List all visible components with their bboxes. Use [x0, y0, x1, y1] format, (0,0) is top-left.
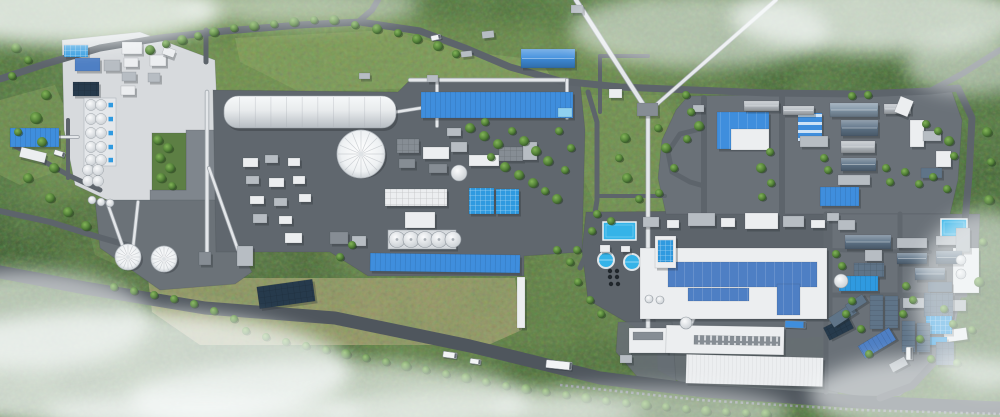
tree [567, 144, 575, 152]
building-roof [637, 103, 658, 116]
tree [588, 227, 596, 235]
building [64, 45, 90, 60]
tree [190, 300, 198, 308]
tree [168, 182, 176, 190]
tree [37, 137, 47, 147]
silo-tower [96, 114, 107, 125]
building [451, 142, 469, 155]
building-roof [936, 151, 951, 167]
building-roof [269, 178, 284, 187]
building [517, 277, 527, 331]
building-roof [427, 75, 438, 82]
silo-tower [93, 176, 104, 187]
tree [929, 173, 937, 181]
building-roof [633, 332, 663, 340]
tree [882, 164, 890, 172]
building [841, 141, 877, 156]
building [496, 189, 521, 217]
tree [766, 148, 774, 156]
tree [573, 246, 581, 254]
tree [155, 153, 165, 163]
building [845, 235, 893, 252]
silo-tower [96, 100, 107, 111]
tree [865, 350, 873, 358]
building-roof [285, 233, 302, 243]
tree [670, 164, 678, 172]
building-roof [405, 212, 435, 228]
building-roof-texture [499, 147, 523, 161]
building-roof [330, 232, 348, 244]
digester-dot [609, 282, 613, 286]
tree [145, 45, 155, 55]
building-roof [429, 164, 447, 173]
building [279, 216, 294, 227]
building-roof [827, 213, 839, 221]
silo-tower [86, 128, 97, 139]
tree [500, 162, 510, 172]
silo-tower [96, 142, 107, 153]
silo-tower [83, 165, 94, 176]
tree [922, 120, 930, 128]
tree [899, 310, 907, 318]
building-roof [571, 5, 583, 13]
building [830, 103, 880, 120]
building-roof [279, 216, 292, 224]
tree [433, 41, 443, 51]
building [299, 194, 313, 205]
building-roof [265, 155, 278, 163]
building [73, 82, 101, 99]
building [429, 164, 449, 176]
building-roof [288, 158, 300, 166]
tree [654, 124, 662, 132]
silo-blue-hatch [109, 103, 114, 108]
building [668, 262, 817, 287]
building-roof [359, 73, 370, 79]
tree [767, 179, 775, 187]
digester-dot [608, 275, 612, 279]
building-roof [800, 136, 828, 147]
building [104, 60, 122, 74]
building [633, 332, 663, 340]
tree [24, 56, 32, 64]
tree [944, 136, 954, 146]
tree [756, 163, 766, 173]
silo-blue-hatch [109, 131, 114, 136]
tree [348, 241, 356, 249]
building-roof-texture [668, 262, 817, 287]
tree [687, 108, 695, 116]
tree [23, 173, 33, 183]
storage-tank [106, 199, 114, 207]
building-roof-texture [658, 240, 673, 262]
building-roof [399, 159, 415, 168]
building [469, 188, 496, 217]
tree [901, 168, 909, 176]
building-roof [745, 213, 778, 229]
building [694, 335, 780, 345]
building-roof-texture [885, 296, 898, 328]
tree [848, 297, 856, 305]
building-roof-texture [686, 354, 824, 387]
building-roof-texture [397, 139, 419, 153]
tree [465, 123, 475, 133]
tree [857, 325, 865, 333]
tree [493, 139, 503, 149]
building-roof-texture [469, 188, 494, 214]
building-roof [423, 147, 449, 159]
building-roof [122, 72, 136, 81]
building [643, 217, 661, 230]
dome-cap [359, 152, 364, 157]
tree [682, 91, 690, 99]
industrial-site-aerial-view [0, 0, 1000, 417]
digester-dot [615, 269, 619, 273]
building-roof [293, 176, 305, 184]
tree [30, 112, 42, 124]
building-roof-texture [421, 92, 573, 118]
building [745, 213, 780, 232]
storage-tank [656, 296, 664, 304]
building [199, 252, 213, 268]
building [423, 147, 451, 162]
building-roof [121, 86, 135, 95]
tree [11, 43, 21, 53]
silo-tower [93, 165, 104, 176]
tree [514, 170, 524, 180]
building [121, 86, 137, 98]
tree [479, 131, 489, 141]
tree [824, 166, 832, 174]
tree [950, 152, 958, 160]
storage-tank [834, 274, 848, 288]
building-roof [274, 198, 287, 206]
tree [49, 163, 59, 173]
building [447, 128, 463, 139]
building-roof [783, 216, 804, 227]
tree [574, 278, 582, 286]
building-roof [124, 58, 138, 67]
vehicle [785, 321, 807, 330]
building [75, 58, 102, 74]
building-roof [620, 355, 632, 363]
round-silo-cap [410, 238, 413, 241]
tree [586, 296, 594, 304]
tree [508, 127, 516, 135]
tree [984, 195, 994, 205]
building-roof [246, 176, 259, 184]
tree [481, 118, 489, 126]
storage-tank [645, 295, 653, 303]
building [253, 214, 269, 226]
building [265, 155, 280, 166]
tree [412, 34, 422, 44]
building-roof [148, 73, 160, 82]
tree [452, 50, 460, 58]
building [405, 212, 437, 231]
tree [8, 72, 16, 80]
tree [543, 156, 553, 166]
building [246, 176, 261, 187]
building [274, 198, 289, 209]
building [936, 151, 953, 170]
silo-blue-hatch [109, 117, 114, 122]
building [731, 129, 769, 150]
storage-tank [451, 165, 467, 181]
tree [194, 32, 202, 40]
tree [210, 307, 218, 315]
building [397, 139, 421, 156]
building [777, 284, 800, 315]
building-roof-texture [64, 45, 88, 57]
building [399, 159, 417, 171]
tree [162, 40, 170, 48]
building [820, 187, 861, 209]
building [330, 232, 350, 247]
tree [209, 27, 219, 37]
building-roof [104, 60, 120, 71]
silo-tower [86, 155, 97, 166]
tree [615, 154, 623, 162]
tree [597, 310, 605, 318]
tree [553, 246, 561, 254]
tree [838, 262, 846, 270]
silo-blue-hatch [109, 145, 114, 150]
tree [635, 195, 643, 203]
tree [156, 173, 166, 183]
building [370, 253, 522, 276]
tree [150, 291, 158, 299]
building [658, 240, 673, 262]
tree [864, 91, 872, 99]
digester-dot [615, 275, 619, 279]
building [800, 136, 830, 150]
building [469, 155, 501, 169]
building-roof [600, 245, 610, 252]
building-roof-texture [820, 187, 859, 206]
silo-tower [86, 114, 97, 125]
tree [163, 143, 173, 153]
building [620, 355, 634, 366]
truck-trailer [785, 321, 806, 329]
tree [41, 90, 51, 100]
tree [902, 282, 910, 290]
building [838, 220, 857, 233]
building-roof [451, 142, 467, 152]
tree [531, 146, 541, 156]
building [841, 120, 880, 139]
digester-dot [616, 282, 620, 286]
tree [561, 166, 569, 174]
building [250, 196, 266, 207]
silo-tower [83, 176, 94, 187]
building [558, 108, 572, 117]
building [285, 233, 304, 246]
round-silo-cap [396, 238, 399, 241]
silo-tower [86, 100, 97, 111]
building [499, 147, 525, 164]
digester-dot [608, 269, 612, 273]
building [122, 42, 144, 57]
dome-cap [126, 255, 130, 259]
building-roof [75, 58, 100, 71]
round-silo-cap [424, 238, 427, 241]
hangar-arched-roof [224, 96, 396, 128]
tree [372, 24, 382, 34]
building-roof [621, 246, 630, 252]
building-roof [811, 220, 825, 228]
silo-blue-hatch [109, 158, 114, 163]
building-roof [910, 120, 924, 147]
tree [394, 29, 402, 37]
building [637, 103, 660, 119]
building-roof [253, 214, 267, 223]
building [421, 92, 575, 121]
tree [81, 221, 91, 231]
building [838, 175, 872, 188]
building-roof [558, 108, 572, 117]
building [897, 238, 929, 251]
building-roof [243, 158, 258, 167]
tree [541, 187, 549, 195]
building-roof [482, 30, 495, 38]
building-roof-texture [854, 263, 884, 277]
storage-tank [88, 196, 96, 204]
building-roof [237, 246, 253, 266]
building-roof-texture [370, 253, 520, 273]
building-roof [667, 220, 679, 228]
tree [886, 178, 894, 186]
tree [230, 24, 238, 32]
building [783, 106, 816, 118]
building [841, 158, 878, 174]
building-roof-texture [496, 189, 519, 214]
building-roof-texture [870, 295, 883, 329]
building-roof [461, 50, 473, 57]
building [385, 189, 449, 209]
building [865, 250, 884, 264]
tree [45, 193, 55, 203]
building-roof [897, 238, 927, 248]
building [885, 296, 900, 331]
tree [14, 128, 22, 136]
building [148, 73, 162, 85]
tree [683, 135, 691, 143]
building [237, 246, 255, 269]
site-render-canvas [0, 0, 1000, 417]
building [609, 89, 624, 101]
building [721, 218, 737, 230]
tree [487, 153, 495, 161]
building [293, 176, 307, 187]
round-silo-cap [438, 238, 441, 241]
building-roof [865, 250, 882, 261]
tree [593, 210, 601, 218]
tree [661, 143, 671, 153]
building [124, 58, 140, 70]
tree [943, 185, 951, 193]
tree [622, 173, 632, 183]
building-roof [122, 42, 142, 54]
tree [566, 258, 574, 266]
truck-cab [803, 322, 805, 328]
tree [336, 253, 344, 261]
silo-tower [96, 155, 107, 166]
tree [934, 127, 942, 135]
building [667, 220, 681, 231]
storage-tank [680, 317, 692, 329]
tree [848, 92, 856, 100]
tree [165, 163, 175, 173]
building [269, 178, 286, 190]
building-roof [299, 194, 311, 202]
storage-tank [97, 198, 105, 206]
tree [655, 189, 663, 197]
building [288, 158, 302, 169]
building-roof [731, 129, 769, 150]
silo-tower [96, 128, 107, 139]
building-roof-texture [73, 82, 99, 96]
tree [832, 250, 840, 258]
building-roof-texture [777, 284, 800, 315]
building-roof [447, 128, 461, 136]
building-roof-texture [694, 335, 780, 345]
dome-cap [162, 257, 166, 261]
building [688, 213, 717, 229]
building [243, 158, 260, 170]
building [744, 101, 781, 114]
building [122, 72, 138, 84]
tree [528, 178, 538, 188]
building [686, 354, 826, 389]
tree [820, 154, 828, 162]
tree [982, 127, 992, 137]
building [783, 216, 806, 230]
tree [170, 295, 178, 303]
tree [620, 133, 630, 143]
tree [758, 193, 766, 201]
building-roof [250, 196, 264, 204]
silo-tower [86, 142, 97, 153]
tree [987, 158, 995, 166]
building [521, 49, 577, 71]
building-roof [688, 213, 715, 226]
building [688, 288, 749, 301]
tree [555, 127, 563, 135]
tree [607, 217, 615, 225]
tree [552, 194, 562, 204]
tree [694, 121, 704, 131]
building-roof [609, 89, 622, 98]
tree [177, 35, 187, 45]
round-silo-cap [452, 238, 455, 241]
building [870, 295, 885, 332]
building-roof [838, 220, 855, 230]
building [811, 220, 827, 231]
building-roof [517, 277, 525, 328]
building-roof [721, 218, 735, 227]
building-roof-texture [385, 189, 447, 206]
tree [519, 136, 529, 146]
tree [63, 207, 73, 217]
building-roof [838, 175, 870, 185]
building-roof [643, 217, 659, 227]
tree [842, 310, 850, 318]
building-roof-texture [688, 288, 749, 301]
tree [153, 135, 163, 145]
tree [915, 180, 923, 188]
building-roof [199, 252, 211, 265]
